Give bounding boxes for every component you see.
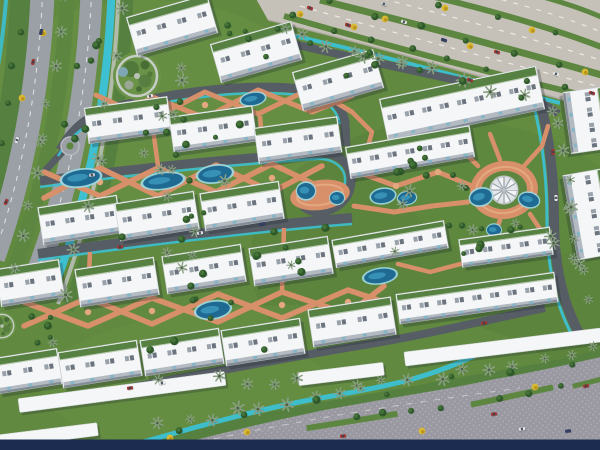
flowering-tree	[419, 428, 426, 435]
flowering-tree	[529, 27, 536, 34]
plaza-pool	[296, 181, 317, 201]
circular-garden	[113, 52, 161, 100]
bottom-navy-bar	[0, 440, 600, 450]
path-node	[393, 183, 399, 189]
masterplan-render-canvas	[0, 0, 600, 450]
path-node	[149, 308, 155, 314]
flowering-tree	[467, 43, 474, 50]
path-node	[279, 302, 285, 308]
flowering-tree	[297, 11, 304, 18]
flowering-tree	[19, 95, 26, 102]
masterplan-aerial-view	[0, 0, 600, 450]
flowering-tree	[582, 69, 589, 76]
flowering-tree	[244, 429, 251, 436]
path-node	[435, 169, 441, 175]
flowering-tree	[382, 16, 389, 23]
car	[89, 173, 96, 178]
car	[117, 245, 124, 250]
path-node	[202, 102, 208, 108]
flowering-tree	[442, 5, 449, 12]
flowering-tree	[351, 24, 358, 31]
layer-overlay	[0, 440, 600, 450]
plaza-pool	[329, 191, 345, 206]
flowering-tree	[532, 384, 539, 391]
path-node	[269, 175, 275, 181]
car	[554, 195, 558, 201]
car	[551, 149, 555, 156]
